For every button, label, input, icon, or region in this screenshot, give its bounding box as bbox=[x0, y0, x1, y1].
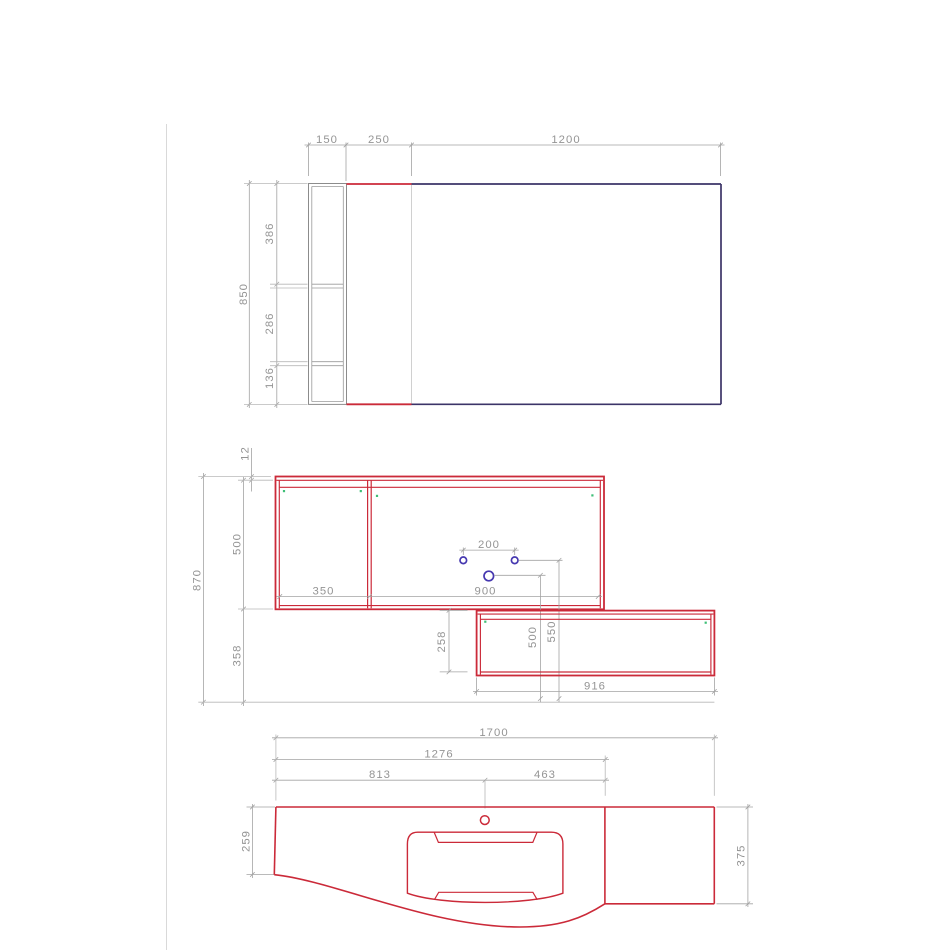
svg-text:550: 550 bbox=[546, 621, 558, 643]
svg-text:900: 900 bbox=[475, 586, 497, 598]
svg-text:259: 259 bbox=[240, 830, 252, 852]
svg-text:375: 375 bbox=[736, 845, 748, 867]
svg-text:286: 286 bbox=[264, 313, 276, 335]
svg-text:463: 463 bbox=[534, 769, 556, 781]
svg-text:1276: 1276 bbox=[424, 748, 453, 760]
svg-text:1200: 1200 bbox=[551, 134, 580, 146]
svg-text:150: 150 bbox=[316, 134, 338, 146]
svg-text:1700: 1700 bbox=[479, 727, 508, 739]
svg-text:386: 386 bbox=[264, 223, 276, 245]
svg-text:350: 350 bbox=[313, 586, 335, 598]
svg-text:258: 258 bbox=[436, 631, 448, 653]
svg-text:136: 136 bbox=[264, 367, 276, 389]
svg-text:870: 870 bbox=[191, 569, 203, 591]
svg-text:200: 200 bbox=[478, 539, 500, 551]
svg-text:500: 500 bbox=[232, 533, 244, 555]
svg-text:813: 813 bbox=[369, 769, 391, 781]
svg-text:850: 850 bbox=[238, 283, 250, 305]
svg-text:250: 250 bbox=[368, 134, 390, 146]
svg-text:358: 358 bbox=[232, 645, 244, 667]
svg-text:12: 12 bbox=[240, 446, 252, 461]
svg-text:500: 500 bbox=[527, 626, 539, 648]
svg-text:916: 916 bbox=[584, 680, 606, 692]
